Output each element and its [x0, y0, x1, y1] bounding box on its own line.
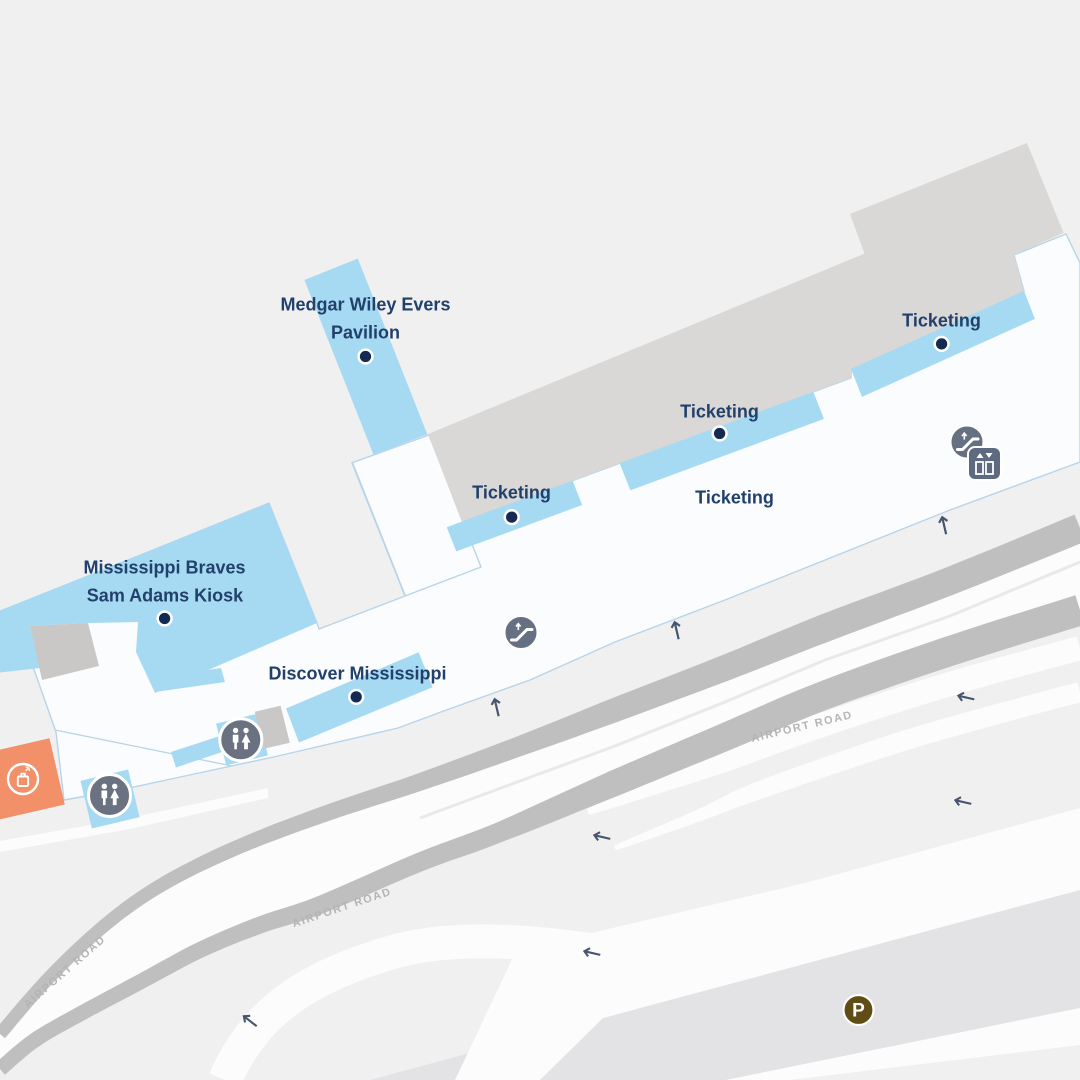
svg-text:P: P — [852, 1001, 865, 1022]
